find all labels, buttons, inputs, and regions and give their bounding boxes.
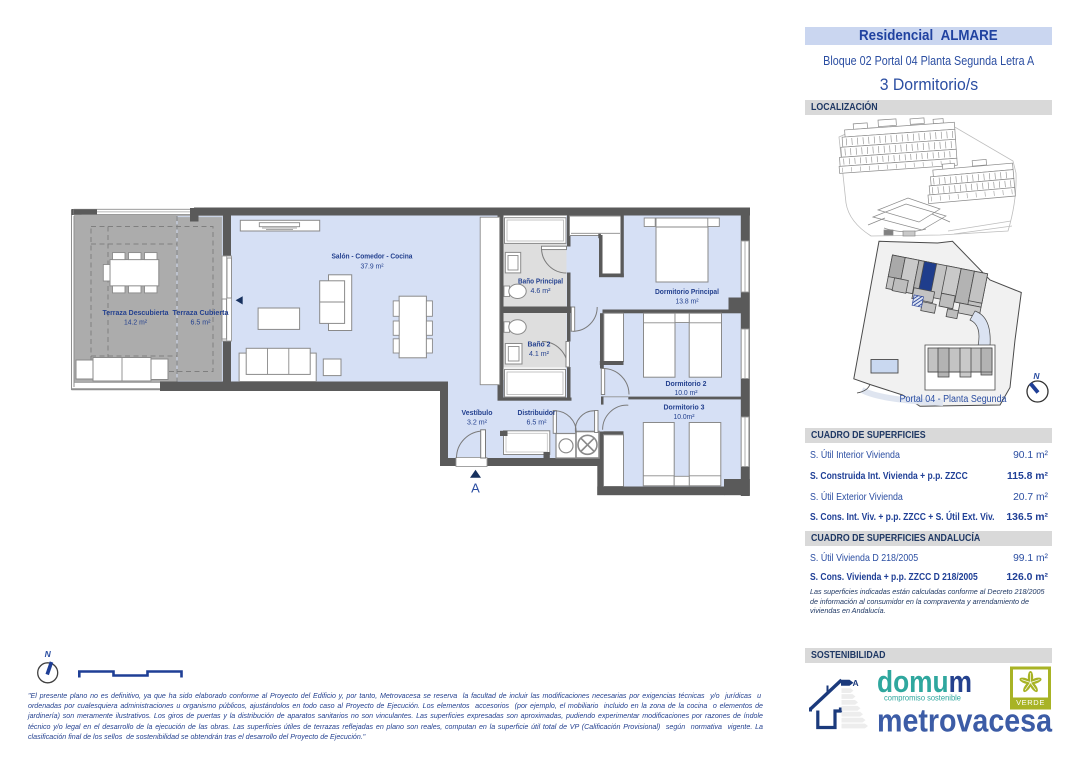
svg-text:compromiso sostenible: compromiso sostenible bbox=[884, 693, 961, 703]
svg-text:3.2 m²: 3.2 m² bbox=[467, 419, 488, 426]
svg-text:6.5 m²: 6.5 m² bbox=[191, 320, 212, 327]
svg-text:N: N bbox=[1033, 371, 1040, 381]
svg-text:13.8 m²: 13.8 m² bbox=[676, 298, 700, 305]
svg-text:10.0 m²: 10.0 m² bbox=[675, 390, 699, 397]
svg-text:VERDE: VERDE bbox=[1016, 698, 1045, 707]
svg-text:4.6 m²: 4.6 m² bbox=[531, 288, 552, 295]
svg-text:4.1 m²: 4.1 m² bbox=[529, 351, 550, 358]
svg-text:N: N bbox=[45, 649, 52, 659]
svg-text:Distribuidor: Distribuidor bbox=[518, 410, 556, 417]
svg-text:37.9 m²: 37.9 m² bbox=[361, 264, 385, 271]
svg-text:A: A bbox=[471, 481, 480, 496]
svg-text:Baño 2: Baño 2 bbox=[528, 341, 551, 348]
svg-text:Dormitorio 2: Dormitorio 2 bbox=[666, 381, 707, 388]
svg-text:Vestíbulo: Vestíbulo bbox=[462, 410, 493, 417]
svg-text:Terraza Descubierta: Terraza Descubierta bbox=[103, 310, 169, 317]
svg-text:14.2 m²: 14.2 m² bbox=[124, 320, 148, 327]
svg-text:Baño Principal: Baño Principal bbox=[518, 278, 563, 285]
svg-text:Portal 04 - Planta Segunda: Portal 04 - Planta Segunda bbox=[900, 394, 1007, 405]
svg-text:Dormitorio Principal: Dormitorio Principal bbox=[655, 289, 719, 296]
svg-text:Terraza Cubierta: Terraza Cubierta bbox=[173, 310, 229, 317]
svg-text:Dormitorio 3: Dormitorio 3 bbox=[664, 404, 705, 411]
svg-text:Salón - Comedor - Cocina: Salón - Comedor - Cocina bbox=[332, 254, 413, 261]
svg-text:10.0m²: 10.0m² bbox=[674, 414, 696, 421]
svg-text:6.5 m²: 6.5 m² bbox=[527, 419, 548, 426]
svg-text:A: A bbox=[853, 678, 859, 688]
